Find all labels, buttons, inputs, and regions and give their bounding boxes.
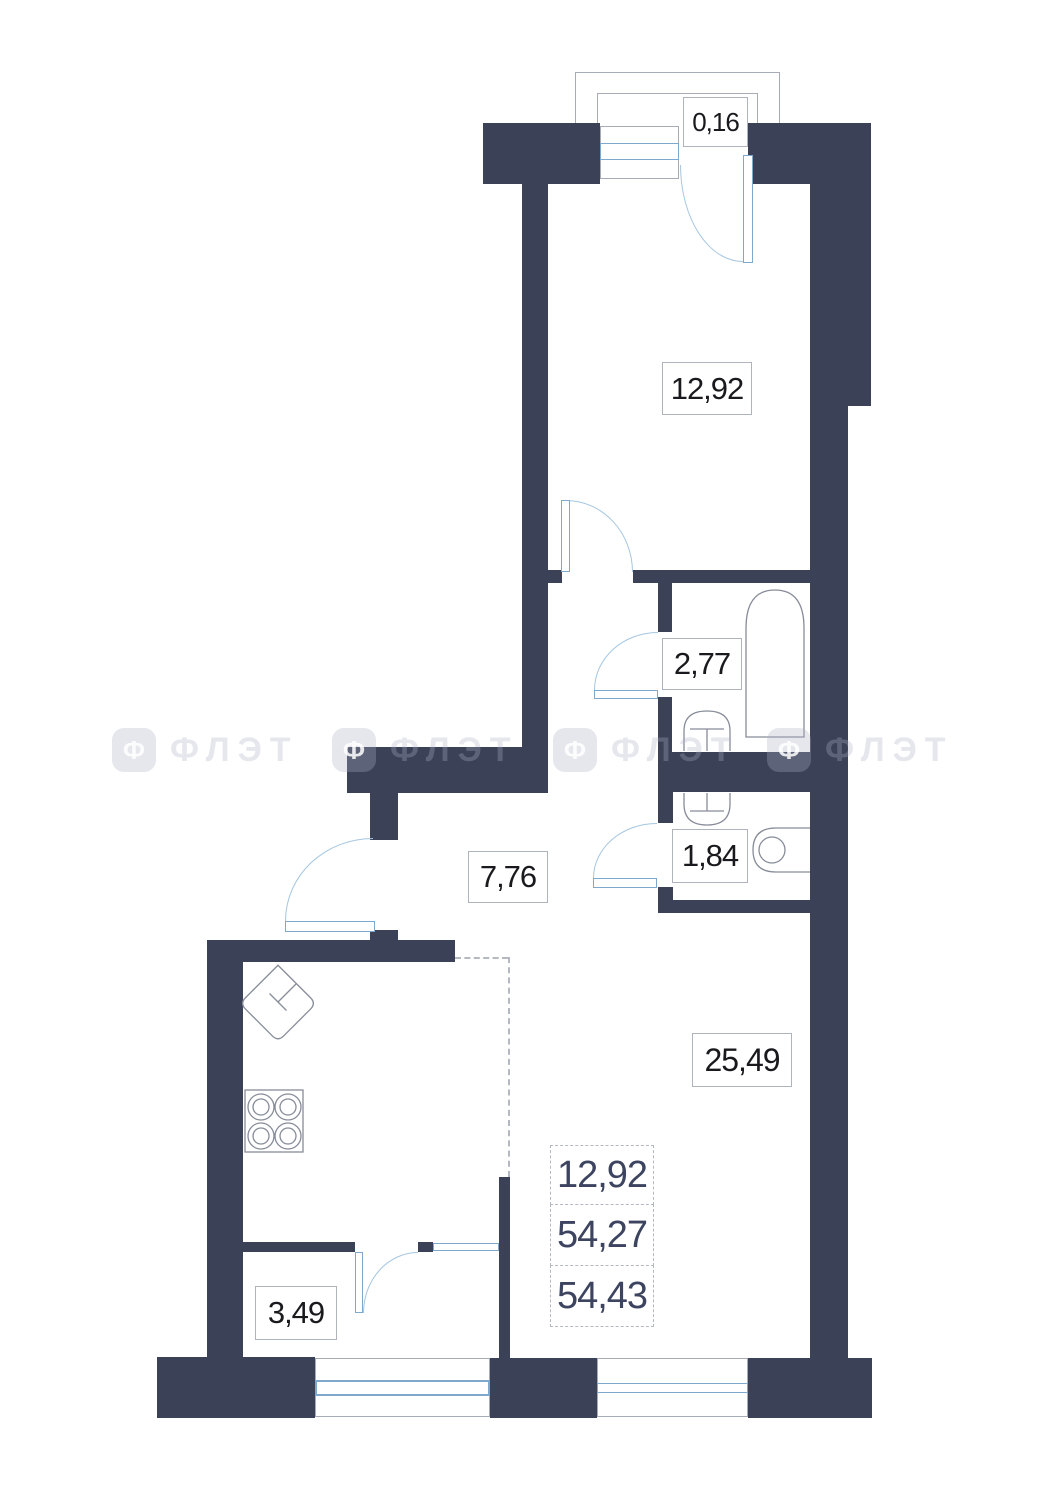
wall-bedroom-bottom — [633, 570, 810, 583]
balcony-door-arc — [680, 165, 743, 262]
bottom-right-window — [597, 1383, 748, 1393]
wc-door-arc — [593, 823, 657, 878]
bottom-left-window — [315, 1380, 490, 1396]
wall-bottom-left-block — [157, 1357, 315, 1418]
stove — [245, 1090, 303, 1152]
room-area-label-wc: 1,84 — [672, 829, 748, 883]
wall-bottom-mid-block — [490, 1358, 597, 1418]
wall-bathroom-left-upper — [658, 583, 672, 632]
wall-wc-left-upper — [658, 792, 673, 823]
bathroom-door-leaf — [594, 690, 658, 699]
wall-kitchen-top — [207, 940, 455, 962]
wall-right-lower — [810, 406, 848, 1358]
watermark-text: ФЛЭТ — [390, 731, 519, 770]
bedroom-door-leaf — [561, 500, 570, 572]
floor-plan: 0,16 12,92 2,77 7,76 1,84 25,49 3,49 12,… — [0, 0, 1060, 1500]
wc-door-leaf — [593, 878, 657, 888]
kitchen-divider-dashed-h — [455, 957, 508, 959]
bedroom-door-arc — [566, 500, 633, 572]
room-area-label-bedroom: 12,92 — [662, 362, 752, 415]
loggia-door-arc — [363, 1252, 418, 1313]
balcony-window — [600, 143, 679, 160]
wall-top-left — [483, 123, 600, 184]
toilet-wc — [684, 793, 730, 825]
sink-wc — [753, 828, 810, 872]
watermark-logo-icon: Ф — [112, 728, 156, 772]
watermark: Ф ФЛЭТ — [332, 727, 519, 773]
watermark-text: ФЛЭТ — [611, 731, 740, 770]
wall-left — [207, 940, 243, 1358]
room-area-label-living-kitchen: 25,49 — [692, 1033, 792, 1087]
wall-bottom-right-block — [748, 1358, 872, 1418]
wall-top-right — [748, 123, 871, 184]
watermark-text: ФЛЭТ — [825, 731, 954, 770]
room-area-label-loggia-bottom: 3,49 — [255, 1286, 337, 1340]
summary-living-area: 12,92 — [550, 1145, 654, 1205]
wall-loggia-top-stub — [418, 1242, 433, 1252]
summary-area-without-balcony: 54,27 — [550, 1204, 654, 1266]
bathroom-door-arc — [594, 632, 658, 690]
wall-hall-left — [370, 793, 398, 840]
summary-total-area: 54,43 — [550, 1265, 654, 1327]
balcony-door-leaf — [743, 155, 753, 263]
watermark-logo-icon: Ф — [553, 728, 597, 772]
watermark-text: ФЛЭТ — [170, 731, 299, 770]
loggia-door-leaf — [355, 1252, 363, 1313]
wall-right-upper — [810, 184, 871, 406]
bathtub — [746, 590, 804, 737]
loggia-window — [433, 1243, 499, 1251]
wall-wc-bottom — [658, 900, 812, 913]
kitchen-divider-dashed-v — [508, 957, 510, 1177]
watermark: Ф ФЛЭТ — [553, 727, 740, 773]
entrance-door-arc — [285, 838, 373, 921]
watermark-logo-icon: Ф — [332, 728, 376, 772]
sink-kitchen — [240, 965, 316, 1041]
wall-loggia-top — [243, 1242, 355, 1252]
room-area-label-bathroom: 2,77 — [662, 638, 742, 690]
wall-kitchen-divider — [499, 1177, 510, 1358]
wall-bedroom-left — [522, 184, 548, 793]
watermark: Ф ФЛЭТ — [767, 727, 954, 773]
watermark-logo-icon: Ф — [767, 728, 811, 772]
room-area-label-balcony-top: 0,16 — [683, 97, 748, 147]
entrance-door-leaf — [285, 921, 375, 932]
wall-bedroom-bottom-stub — [522, 570, 562, 583]
watermark: Ф ФЛЭТ — [112, 727, 299, 773]
room-area-label-hallway: 7,76 — [468, 851, 548, 903]
